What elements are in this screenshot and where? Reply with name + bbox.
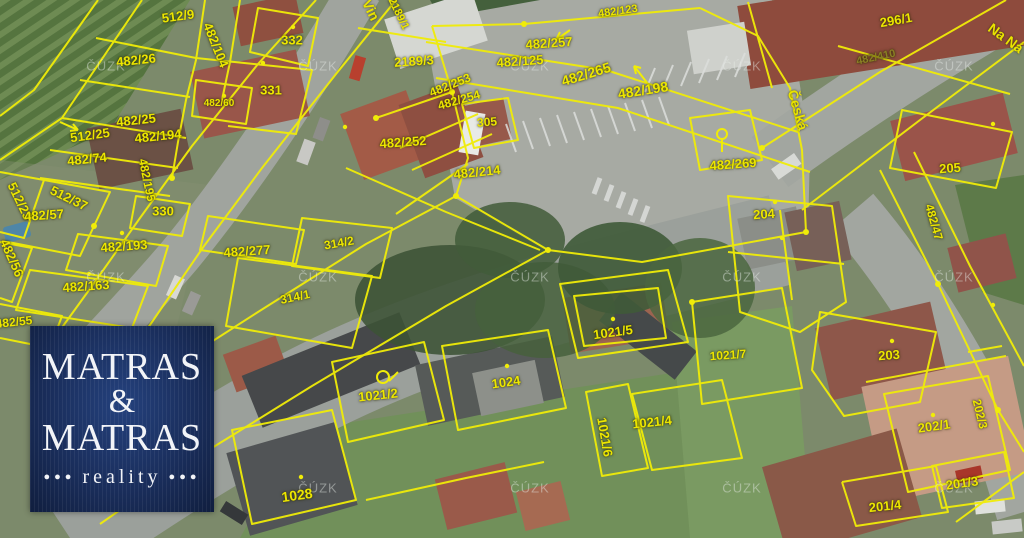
parcel-number-label: 482/60 <box>204 99 235 109</box>
parcel-number-label: 482/163 <box>62 278 110 294</box>
parcel-number-label: 1021/2 <box>358 386 399 403</box>
logo-ampersand: & <box>109 387 135 418</box>
parcel-number-label: 1024 <box>491 374 521 391</box>
parcel-number-label: 2189/3 <box>394 53 435 69</box>
parcel-number-label: 203 <box>878 348 901 362</box>
parcel-number-label: 205 <box>939 161 962 175</box>
parcel-number-label: 1021/4 <box>632 413 673 430</box>
parcel-number-label: 482/26 <box>116 51 157 68</box>
parcel-number-label: 482/55 <box>0 314 33 330</box>
parcel-number-label: 332 <box>281 34 303 47</box>
cuzk-watermark: ČÚZK <box>510 481 549 496</box>
parcel-number-label: 482/125 <box>496 53 544 69</box>
cadastral-map: ČÚZKČÚZKČÚZKČÚZKČÚZKČÚZKČÚZKČÚZKČÚZKČÚZK… <box>0 0 1024 538</box>
cuzk-watermark: ČÚZK <box>722 481 761 496</box>
parcel-number-label: 331 <box>260 84 282 97</box>
parcel-number-label: 482/269 <box>709 156 757 172</box>
parcel-number-label: 330 <box>152 205 174 218</box>
logo-line2: MATRAS <box>42 420 202 456</box>
cuzk-watermark: ČÚZK <box>722 270 761 285</box>
parcel-number-label: 1021/7 <box>709 348 746 363</box>
parcel-number-label: 482/277 <box>223 243 271 259</box>
agency-logo: MATRAS & MATRAS ●●● reality ●●● <box>30 326 214 512</box>
parcel-number-label: 482/57 <box>24 207 65 223</box>
logo-dots-right: ●●● <box>169 472 201 483</box>
parcel-number-label: 482/193 <box>100 238 148 254</box>
parcel-number-label: 482/25 <box>116 111 157 128</box>
parcel-number-label: 482/252 <box>379 134 427 150</box>
parcel-number-label: 201/4 <box>868 498 902 514</box>
logo-tagline-text: reality <box>82 466 161 489</box>
logo-tagline: ●●● reality ●●● <box>44 466 201 489</box>
logo-dots-left: ●●● <box>44 472 76 483</box>
parcel-number-label: 482/257 <box>525 35 573 51</box>
cuzk-watermark: ČÚZK <box>298 59 337 74</box>
parcel-number-label: 305 <box>477 115 498 128</box>
logo-line1: MATRAS <box>42 349 202 385</box>
cuzk-watermark: ČÚZK <box>722 59 761 74</box>
parcel-number-label: 1028 <box>281 486 314 504</box>
cuzk-watermark: ČÚZK <box>934 59 973 74</box>
parcel-number-label: 482/74 <box>67 150 108 167</box>
cuzk-watermark: ČÚZK <box>298 270 337 285</box>
parcel-number-label: 204 <box>753 207 776 221</box>
cuzk-watermark: ČÚZK <box>510 270 549 285</box>
cuzk-watermark: ČÚZK <box>934 270 973 285</box>
